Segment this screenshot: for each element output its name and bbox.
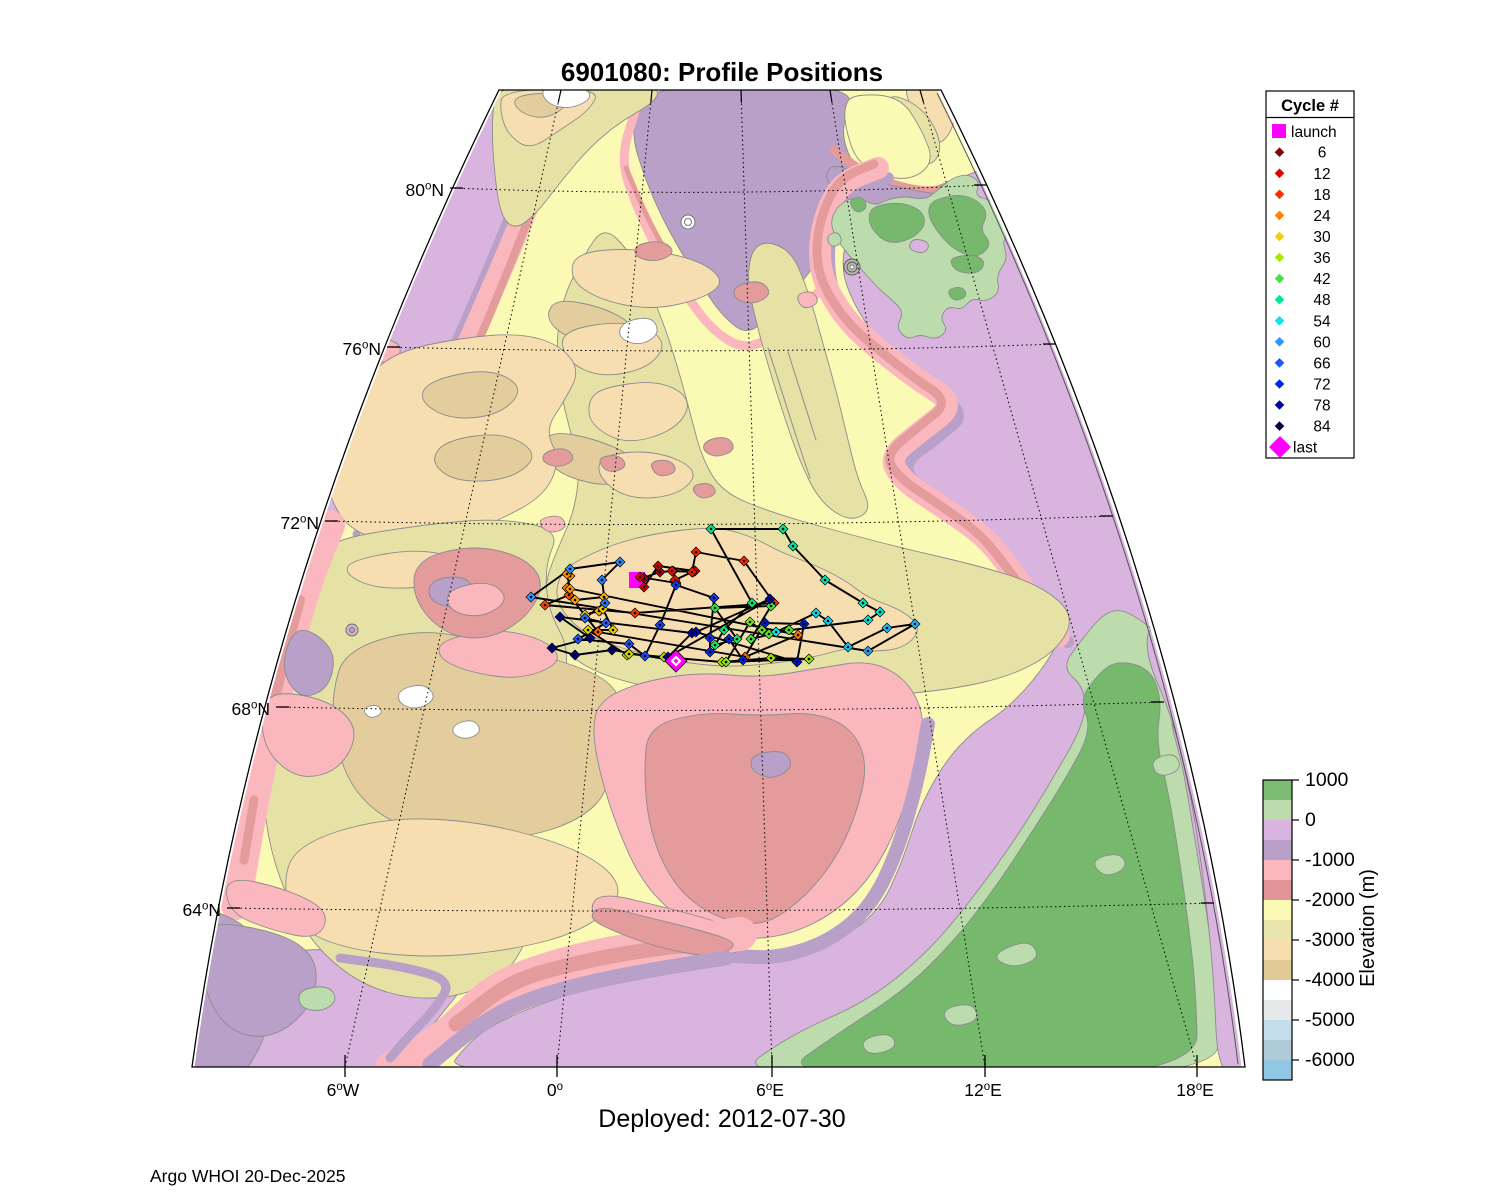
- svg-text:-4000: -4000: [1305, 969, 1355, 991]
- svg-text:54: 54: [1313, 313, 1331, 330]
- svg-text:0o: 0o: [547, 1080, 563, 1100]
- svg-text:-2000: -2000: [1305, 889, 1355, 911]
- svg-text:-3000: -3000: [1305, 929, 1355, 951]
- svg-text:0: 0: [1305, 809, 1316, 831]
- svg-text:72: 72: [1313, 377, 1330, 394]
- svg-text:68oN: 68oN: [231, 699, 270, 719]
- svg-text:24: 24: [1313, 208, 1331, 225]
- svg-text:60: 60: [1313, 334, 1331, 351]
- svg-text:Elevation (m): Elevation (m): [1357, 869, 1379, 987]
- svg-text:30: 30: [1313, 229, 1331, 246]
- svg-text:last: last: [1293, 440, 1318, 457]
- svg-text:80oN: 80oN: [405, 180, 444, 200]
- svg-text:6901080: Profile Positions: 6901080: Profile Positions: [561, 57, 883, 87]
- svg-text:6: 6: [1318, 145, 1327, 162]
- svg-text:18: 18: [1313, 187, 1330, 204]
- svg-text:18oE: 18oE: [1176, 1080, 1214, 1100]
- svg-text:48: 48: [1313, 292, 1330, 309]
- svg-text:36: 36: [1313, 250, 1330, 267]
- svg-text:78: 78: [1313, 398, 1330, 415]
- svg-text:12: 12: [1313, 166, 1330, 183]
- svg-text:Cycle #: Cycle #: [1281, 97, 1339, 115]
- svg-text:1000: 1000: [1305, 769, 1349, 791]
- svg-text:72oN: 72oN: [280, 513, 319, 533]
- svg-text:12oE: 12oE: [964, 1080, 1002, 1100]
- svg-text:66: 66: [1313, 355, 1330, 372]
- svg-text:84: 84: [1313, 419, 1331, 436]
- svg-text:Argo WHOI 20-Dec-2025: Argo WHOI 20-Dec-2025: [150, 1166, 346, 1186]
- svg-text:76oN: 76oN: [342, 339, 381, 359]
- svg-text:-1000: -1000: [1305, 849, 1355, 871]
- svg-text:-5000: -5000: [1305, 1009, 1355, 1031]
- svg-text:6oW: 6oW: [327, 1080, 360, 1100]
- svg-text:-6000: -6000: [1305, 1049, 1355, 1071]
- svg-text:42: 42: [1313, 271, 1330, 288]
- svg-text:64oN: 64oN: [182, 900, 221, 920]
- svg-text:launch: launch: [1291, 124, 1337, 141]
- svg-text:6oE: 6oE: [756, 1080, 784, 1100]
- svg-text:Deployed: 2012-07-30: Deployed: 2012-07-30: [598, 1105, 845, 1133]
